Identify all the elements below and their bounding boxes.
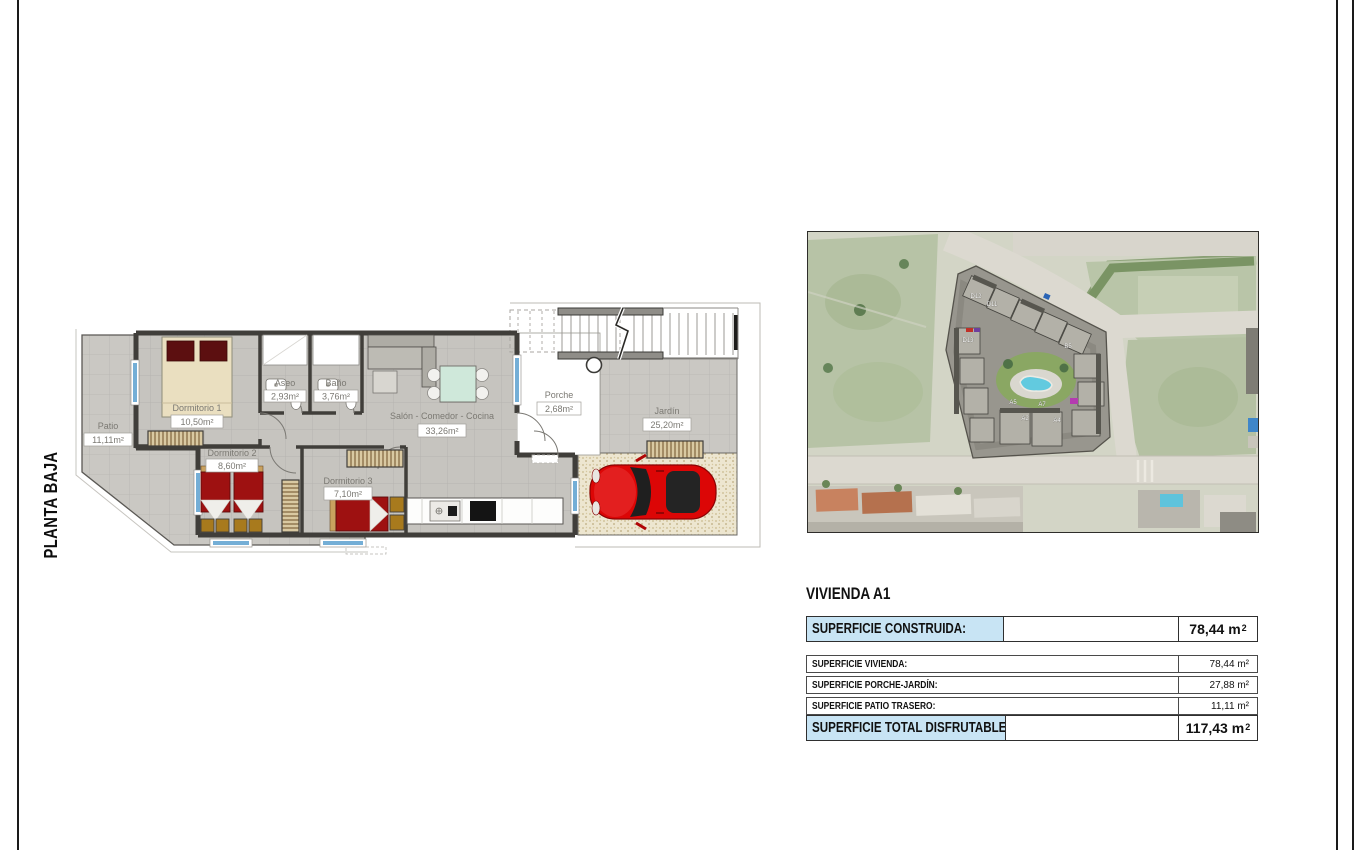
svg-text:Salón - Comedor - Cocina: Salón - Comedor - Cocina [390,411,494,421]
row-label: SUPERFICIE PORCHE-JARDÍN: [807,677,1178,693]
svg-text:Porche: Porche [545,390,574,400]
row-label: SUPERFICIE PATIO TRASERO: [807,698,1178,714]
svg-text:2,93m²: 2,93m² [271,392,299,402]
row-value: 117,43 m2 [1178,716,1257,740]
row-label: SUPERFICIE CONSTRUIDA: [807,617,1004,641]
row-superficie-construida: SUPERFICIE CONSTRUIDA: 78,44 m2 [806,616,1258,642]
row-value: 78,44 m2 [1178,617,1257,641]
row-value: 11,11 m² [1178,698,1257,714]
svg-text:A7: A7 [1038,402,1046,408]
svg-text:Dormitorio 3: Dormitorio 3 [323,476,372,486]
svg-text:3,76m²: 3,76m² [322,392,350,402]
svg-text:Patio: Patio [98,421,119,431]
sheet-border-left [17,0,19,850]
car [590,455,716,529]
cooktop [470,501,496,521]
svg-text:A5: A5 [1009,400,1017,406]
row-label: SUPERFICIE VIVIENDA: [807,656,1178,672]
row-spacer [1004,617,1178,641]
label-dormitorio-3: Dormitorio 3 7,10m² [323,476,372,500]
svg-text:10,50m²: 10,50m² [180,417,213,427]
sheet-title-planta-baja: PLANTA BAJA [40,451,62,558]
kitchen-counter [407,498,563,524]
label-dormitorio-2: Dormitorio 2 8,60m² [206,448,258,472]
unit-title: VIVIENDA A1 [806,584,912,604]
svg-text:A4: A4 [1053,418,1061,424]
row-spacer [1006,716,1178,740]
svg-text:2,68m²: 2,68m² [545,404,573,414]
svg-text:Dormitorio 1: Dormitorio 1 [172,403,221,413]
svg-text:11,11m²: 11,11m² [92,435,124,445]
svg-text:Dormitorio 2: Dormitorio 2 [207,448,256,458]
stair-column [587,358,602,373]
svg-text:D11: D11 [987,302,998,308]
row-value: 27,88 m² [1178,677,1257,693]
svg-text:Baño: Baño [325,378,346,388]
svg-text:7,10m²: 7,10m² [334,489,362,499]
row-superficie-total-disfrutable: SUPERFICIE TOTAL DISFRUTABLE: 117,43 m2 [806,715,1258,741]
svg-text:Jardín: Jardín [654,406,679,416]
svg-text:A2: A2 [1021,416,1029,422]
row-label: SUPERFICIE TOTAL DISFRUTABLE: [807,716,1006,740]
svg-text:33,26m²: 33,26m² [425,426,458,436]
row-value: 78,44 m² [1178,656,1257,672]
svg-text:D13: D13 [962,338,974,344]
svg-text:D12: D12 [970,294,982,300]
site-aerial-map: D12 D11 D13 B5 A5 A2 A7 A4 [807,231,1259,533]
row-superficie-porche-jardin: SUPERFICIE PORCHE-JARDÍN: 27,88 m² [806,676,1258,694]
sheet-border-right-outer [1352,0,1354,850]
svg-text:Aseo: Aseo [275,378,296,388]
row-superficie-patio-trasero: SUPERFICIE PATIO TRASERO: 11,11 m² [806,697,1258,715]
svg-text:8,60m²: 8,60m² [218,461,246,471]
svg-text:25,20m²: 25,20m² [650,420,683,430]
floor-plan: Patio 11,11m² Dormitorio 1 10,50m² Aseo … [70,295,770,575]
row-superficie-vivienda: SUPERFICIE VIVIENDA: 78,44 m² [806,655,1258,673]
svg-text:B5: B5 [1064,344,1072,350]
map-bottom-buildings [808,480,1023,532]
porche-step [532,455,558,463]
label-dormitorio-1: Dormitorio 1 10,50m² [171,403,223,428]
sheet-border-right-inner [1336,0,1338,850]
